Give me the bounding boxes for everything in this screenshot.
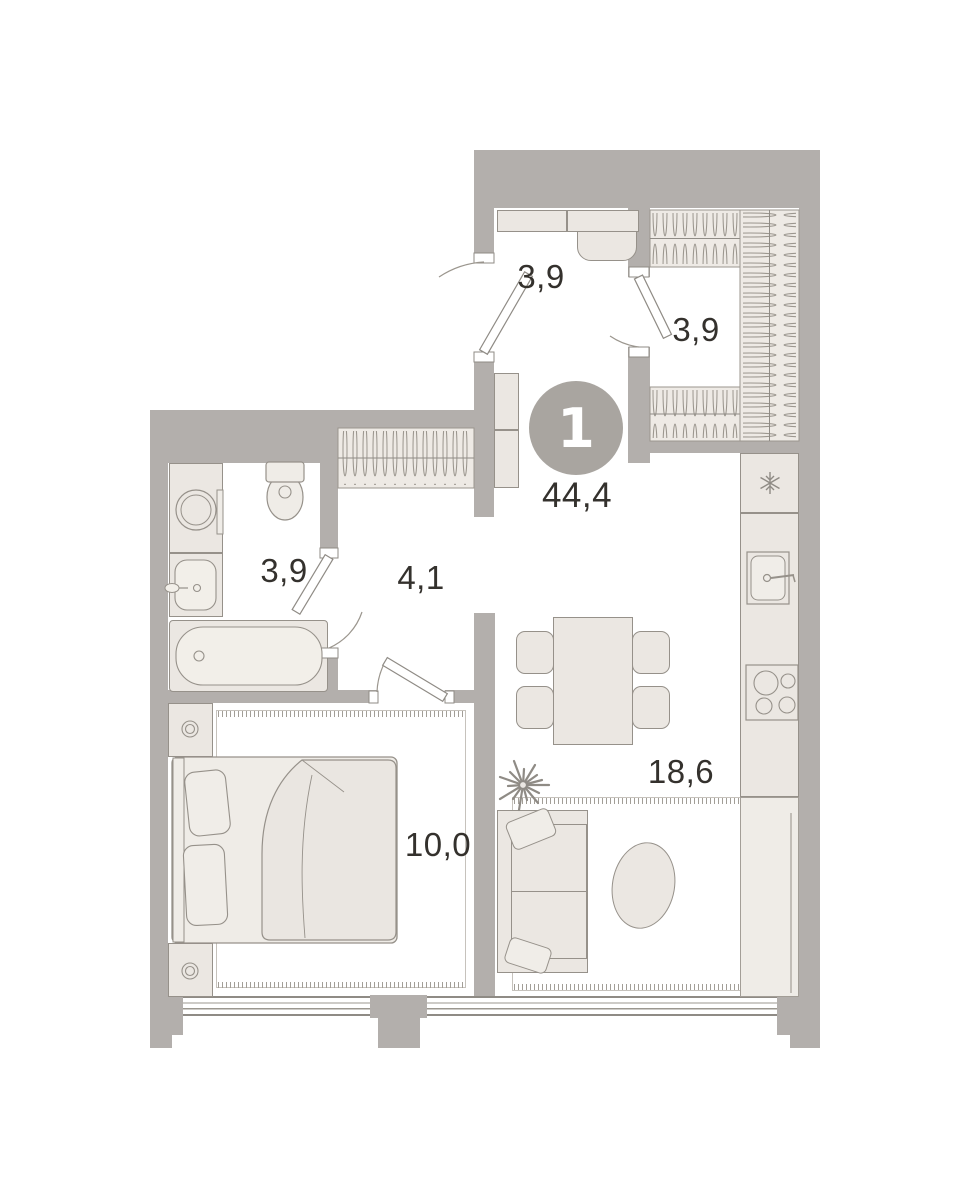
curtain-ticks-living-bottom (514, 984, 761, 990)
wall-left-mid (474, 352, 494, 517)
dining-chair (632, 686, 670, 729)
kitchen-counter (740, 513, 799, 797)
wall-corridor-top (150, 410, 340, 463)
dining-chair (632, 631, 670, 674)
unit-number-badge: 1 (529, 381, 623, 475)
hall-stool (577, 231, 637, 261)
wall-hall-left-upper (474, 150, 494, 262)
cabinet-upper (494, 373, 519, 430)
wall-above-closet (340, 410, 475, 428)
cabinet-lower (494, 430, 519, 488)
wall-divider-post (474, 613, 495, 703)
bedroom-door (377, 658, 447, 702)
bathroom-vanity (169, 553, 223, 617)
pier-bottom-right (777, 995, 820, 1035)
toilet-icon (266, 462, 304, 520)
unit-number: 1 (557, 397, 595, 460)
hallway-area-label: 3,9 (517, 258, 564, 296)
floor-plan: 3,9 3,9 3,9 4,1 10,0 18,6 44,4 1 (0, 0, 970, 1200)
curtain-ticks-bedroom-top (218, 711, 464, 717)
nightstand-bottom (168, 943, 213, 997)
corridor-area-label: 4,1 (397, 559, 444, 597)
dining-table (553, 617, 633, 745)
hall-shelf-left (497, 210, 567, 232)
bathtub (169, 620, 328, 692)
total-area-label: 44,4 (542, 476, 612, 516)
curtain-ticks-bedroom-bottom (218, 982, 464, 988)
wall-right (799, 150, 820, 1048)
pier-bottom-right-step (790, 1032, 820, 1048)
pier-bottom-left (150, 995, 183, 1035)
kitchen-tall-panel (740, 797, 799, 997)
window-living (427, 996, 777, 1016)
pier-bottom-left-step (150, 1030, 172, 1048)
wall-bedroom-top-right (445, 690, 474, 703)
bedroom-area-label: 10,0 (405, 826, 471, 864)
fridge (740, 453, 799, 513)
living-kitchen-area-label: 18,6 (648, 753, 714, 791)
washing-machine (169, 463, 223, 553)
nightstand-lamp-icon (182, 721, 198, 979)
wardrobe-rack-bottom clothes-hanger-icon (650, 387, 740, 441)
wardrobe-rack-top clothes-hanger-icon (650, 210, 740, 267)
pier-bottom-center-step (378, 1016, 420, 1048)
pier-bottom-center (370, 995, 427, 1018)
curtain-ticks-living-top (514, 798, 761, 804)
wall-wardrobe-bottom (640, 441, 799, 453)
wall-left-exterior (150, 410, 168, 1048)
window-bedroom (183, 996, 370, 1016)
hall-shelf-right (567, 210, 639, 232)
dining-chair (516, 631, 554, 674)
wardrobe-door (610, 275, 671, 347)
wall-bedroom-living-divider (474, 703, 495, 997)
corridor-closet clothes-hanger-icon (338, 428, 474, 488)
dining-chair (516, 686, 554, 729)
bathroom-area-label: 3,9 (260, 552, 307, 590)
nightstand-top (168, 703, 213, 757)
wardrobe-area-label: 3,9 (672, 311, 719, 349)
wardrobe-rack-right clothes-hanger-icon (740, 210, 799, 441)
wall-bathroom-right-upper (320, 463, 338, 549)
wall-top (475, 150, 820, 208)
